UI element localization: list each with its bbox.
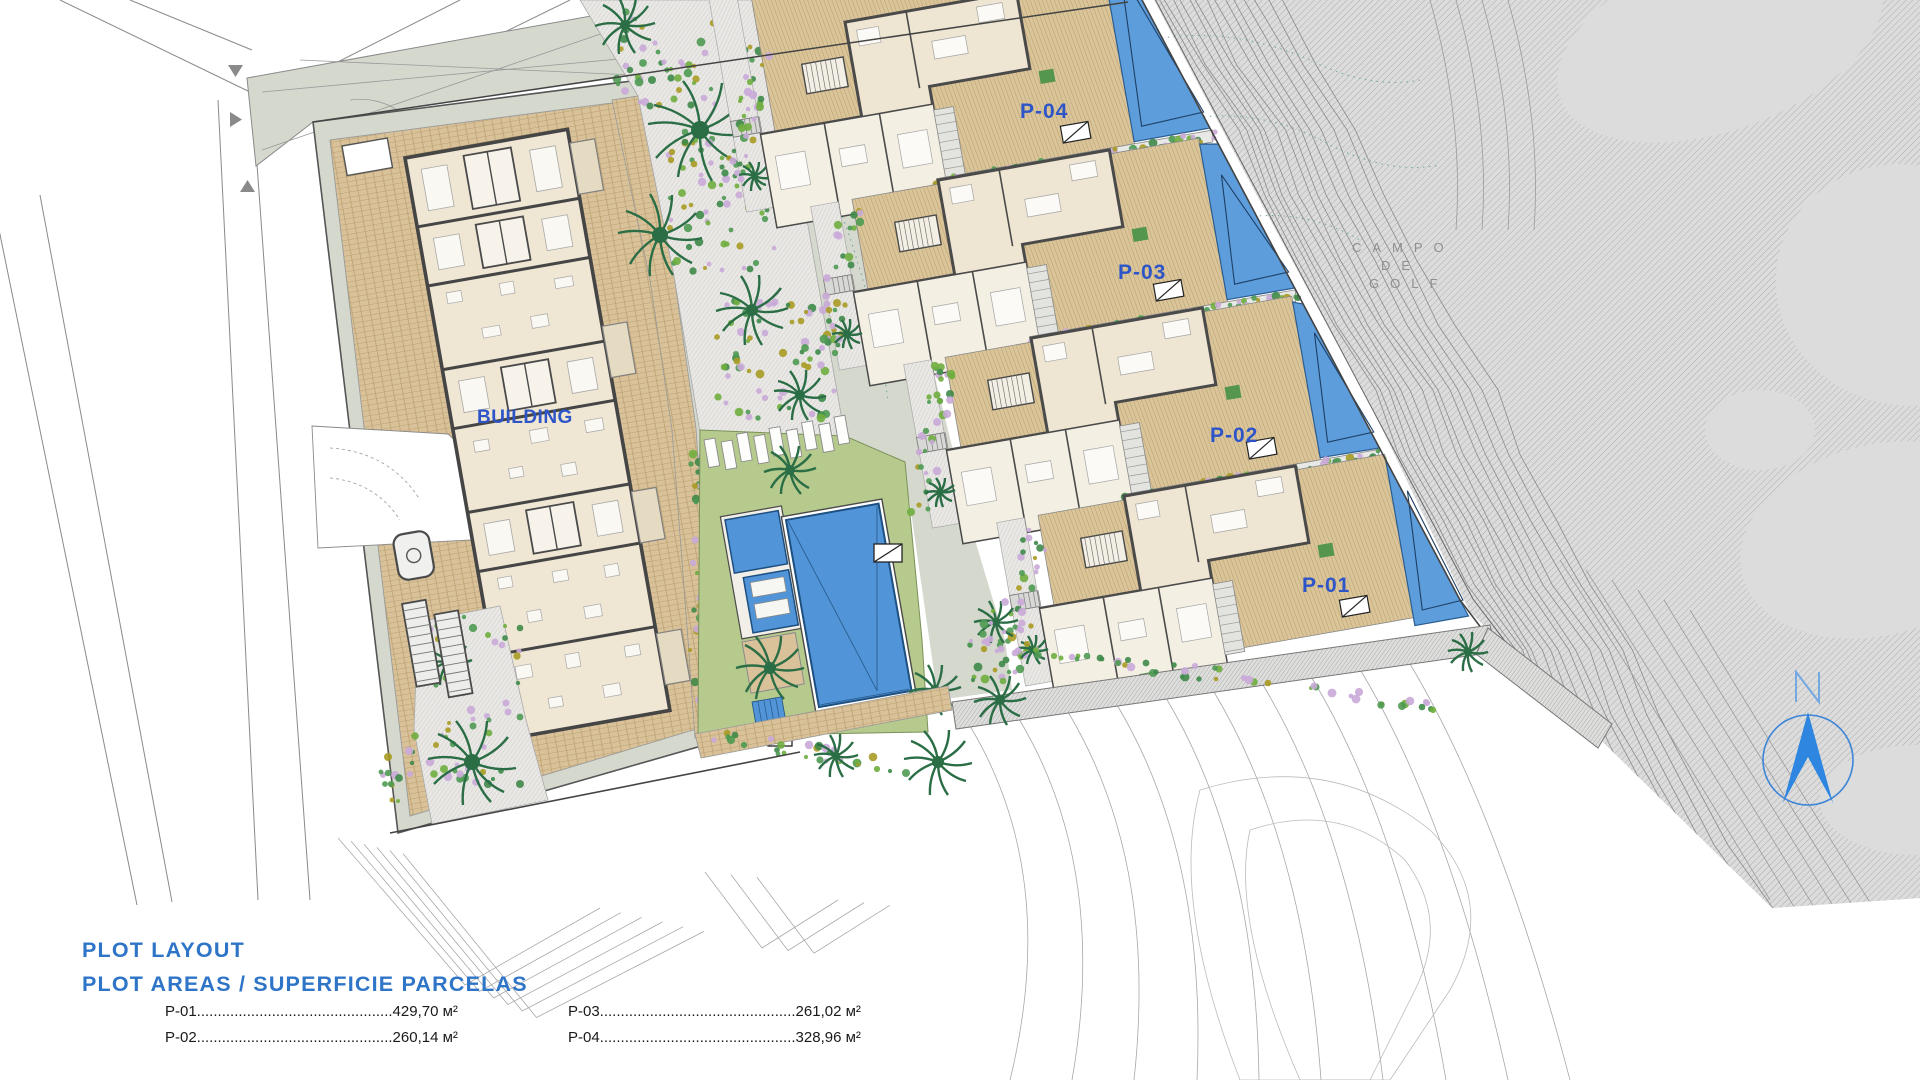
svg-text:PLOT AREAS / SUPERFICIE PARCEL: PLOT AREAS / SUPERFICIE PARCELAS [82, 972, 528, 996]
svg-text:P-02..........................: P-02....................................… [165, 1029, 458, 1046]
svg-text:BUILDING: BUILDING [477, 407, 573, 428]
svg-text:P-01: P-01 [1302, 574, 1350, 597]
svg-text:P-02: P-02 [1210, 424, 1258, 447]
svg-text:P-04: P-04 [1020, 100, 1068, 123]
svg-text:P-04..........................: P-04....................................… [568, 1029, 861, 1046]
svg-text:CAMPO: CAMPO [1352, 240, 1455, 255]
svg-text:P-01..........................: P-01....................................… [165, 1003, 458, 1020]
svg-text:PLOT LAYOUT: PLOT LAYOUT [82, 938, 245, 962]
svg-text:P-03: P-03 [1118, 261, 1166, 284]
svg-text:DE: DE [1381, 258, 1421, 273]
svg-text:P-03..........................: P-03....................................… [568, 1003, 861, 1020]
svg-text:GOLF: GOLF [1369, 276, 1448, 291]
